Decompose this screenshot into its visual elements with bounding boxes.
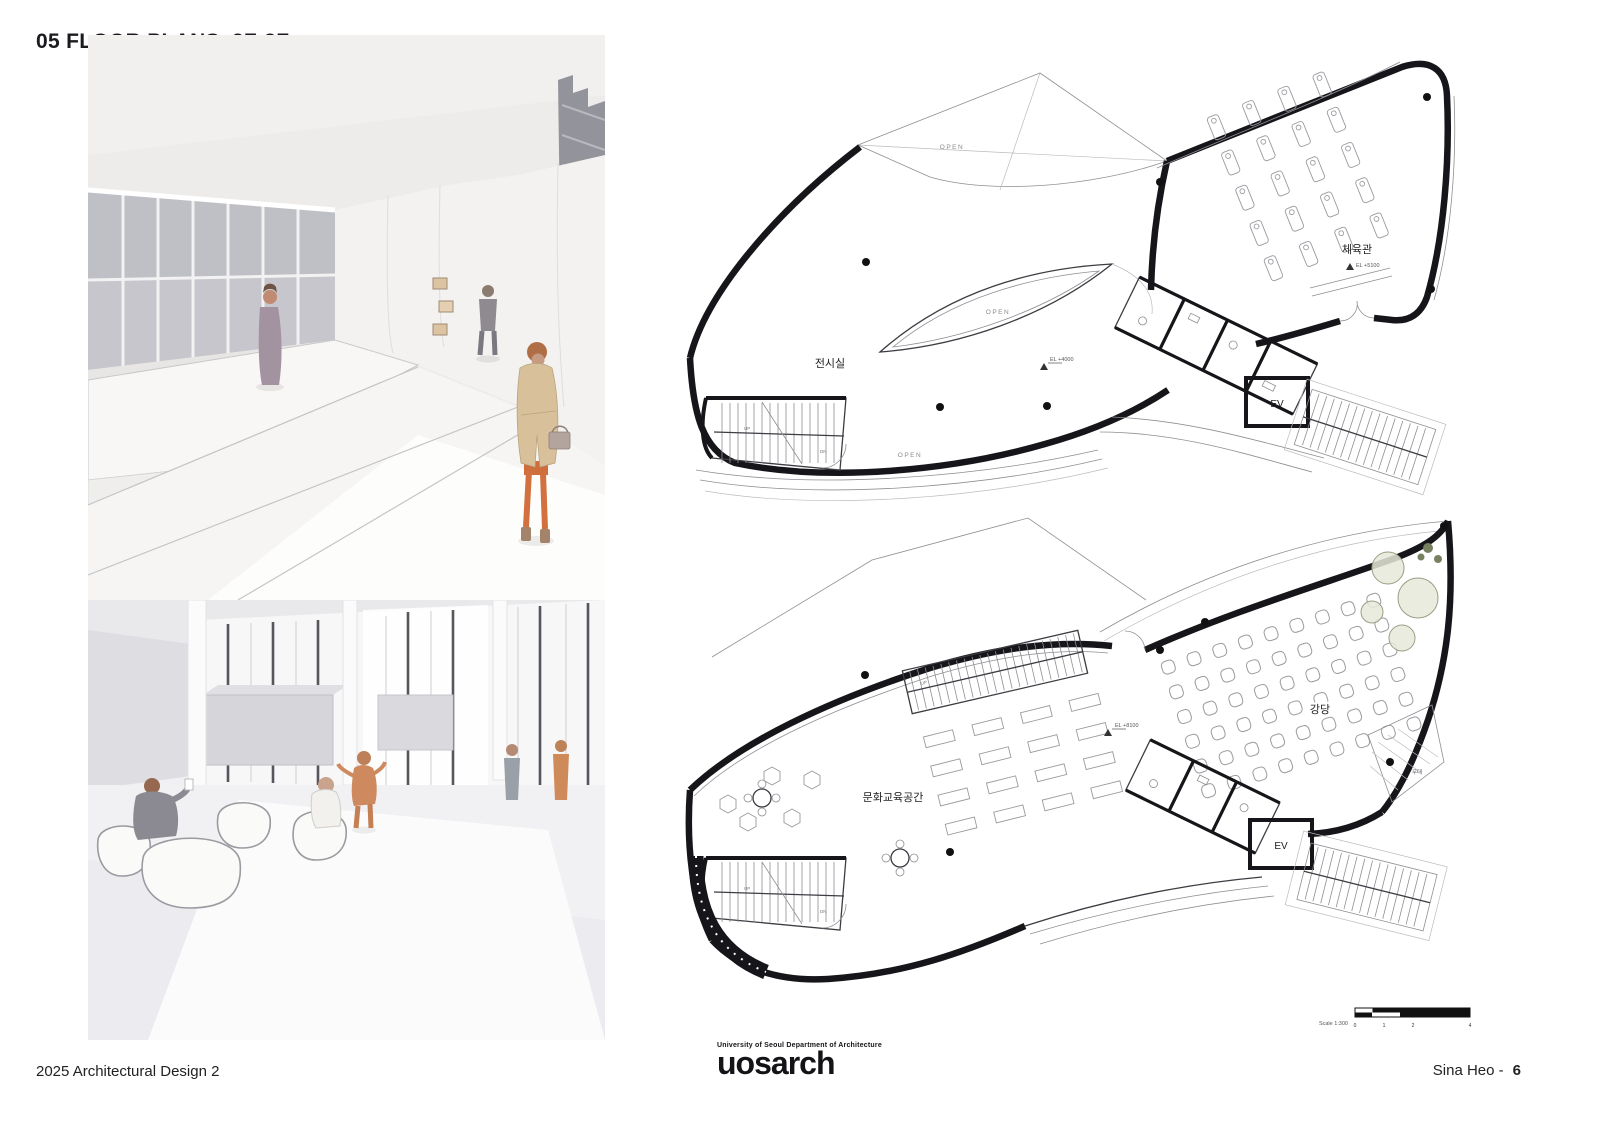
- elevation-marker: EL +5100: [1346, 263, 1380, 270]
- stair-up-label: UP: [920, 680, 927, 686]
- open-label: OPEN: [940, 144, 964, 151]
- interior-render-exhibition: [88, 35, 605, 600]
- svg-text:EV: EV: [1274, 841, 1288, 852]
- auditorium-seating: [1160, 592, 1422, 799]
- culture-education-space: 문화교육공간 UP: [690, 630, 1139, 876]
- svg-text:1: 1: [1383, 1023, 1386, 1029]
- course-label: 2025 Architectural Design 2: [36, 1063, 219, 1080]
- open-label: OPEN: [986, 309, 1010, 316]
- svg-text:4: 4: [1469, 1023, 1472, 1029]
- logo-text: uosarch: [717, 1050, 882, 1077]
- stair-dn-label: DN: [820, 909, 827, 914]
- gymnasium: 체육관 EL +5100: [1151, 62, 1455, 344]
- floor-plan-2f: OPEN OPEN OPEN 전시실 EL +4000: [672, 52, 1462, 542]
- scale-label: Scale 1:300: [1319, 1021, 1348, 1027]
- stage: 무대: [1368, 705, 1444, 802]
- presentation-board: 05 FLOOR PLANS_2F-3F: [0, 0, 1600, 1131]
- svg-text:EL +4000: EL +4000: [1050, 357, 1074, 363]
- gym-label: 체육관: [1342, 243, 1372, 256]
- svg-text:2: 2: [1412, 1023, 1415, 1029]
- stair-up-label: UP: [744, 886, 750, 891]
- svg-text:0: 0: [1354, 1023, 1357, 1029]
- exterior-stair: [1285, 831, 1447, 941]
- scale-bar: Scale 1:300 0 1 2 4: [1319, 1008, 1472, 1029]
- exhibition-hall: OPEN OPEN 전시실 EL +4000: [690, 147, 1324, 501]
- void-sail: OPEN: [858, 73, 1167, 190]
- stair-dn-label: DN: [820, 449, 827, 454]
- floor-plan-3f: 문화교육공간 UP: [672, 505, 1472, 1035]
- culture-label: 문화교육공간: [863, 791, 924, 804]
- roof-outline: [712, 518, 1450, 657]
- stair-room: UP DN: [703, 398, 846, 470]
- svg-text:EL +8100: EL +8100: [1115, 723, 1139, 729]
- author-name: Sina Heo -: [1433, 1062, 1504, 1079]
- hex-tables: [720, 767, 820, 831]
- stair-room: UP DN: [703, 858, 846, 930]
- author-credit: Sina Heo -6: [1433, 1062, 1521, 1079]
- page-number: 6: [1513, 1062, 1521, 1079]
- auditorium-label: 강당: [1310, 703, 1330, 716]
- elevation-marker: EL +4000: [1040, 357, 1074, 370]
- left-wall: [88, 630, 198, 790]
- svg-text:EL +5100: EL +5100: [1356, 263, 1380, 269]
- interior-render-lounge: [88, 600, 605, 1040]
- exhibition-label: 전시실: [815, 357, 845, 370]
- stage-label: 무대: [1412, 768, 1422, 776]
- auditorium: 강당 무대: [1125, 521, 1451, 834]
- svg-text:EV: EV: [1270, 399, 1284, 410]
- stair-up-label: UP: [744, 426, 750, 431]
- uosarch-logo: University of Seoul Department of Archit…: [717, 1042, 882, 1077]
- elevation-marker: EL +8100: [1104, 723, 1139, 736]
- open-label: OPEN: [898, 452, 922, 459]
- desk-rows: [923, 693, 1122, 835]
